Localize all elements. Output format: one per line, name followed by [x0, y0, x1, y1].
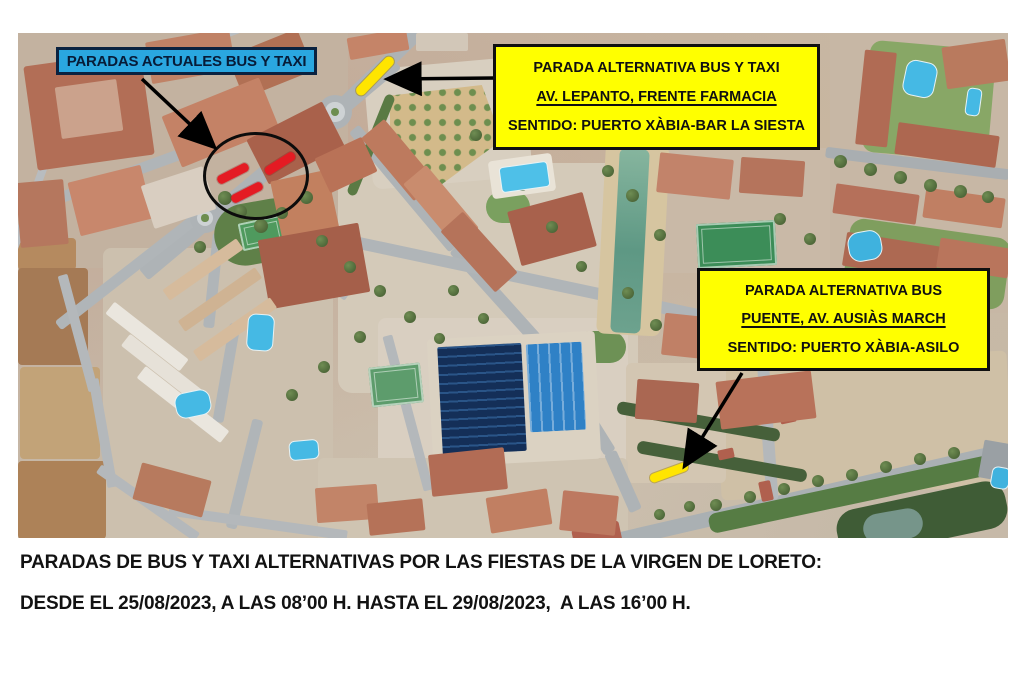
swimming-pool: [288, 439, 320, 462]
building: [18, 179, 69, 248]
solar-panels: [437, 343, 527, 455]
tree: [404, 311, 416, 323]
alt-stop-1-label: PARADA ALTERNATIVA BUS Y TAXI AV. LEPANT…: [493, 44, 820, 150]
tree: [602, 165, 614, 177]
tree: [744, 491, 756, 503]
alt-stop-1-location: AV. LEPANTO, FRENTE FARMACIA: [536, 89, 776, 105]
tree: [710, 499, 722, 511]
sports-court: [696, 220, 777, 269]
building: [559, 490, 619, 536]
tree: [546, 221, 558, 233]
dirt-lot: [18, 461, 106, 538]
tree: [318, 361, 330, 373]
building: [366, 498, 425, 536]
tree: [894, 171, 907, 184]
tree: [354, 331, 366, 343]
building: [941, 39, 1008, 89]
footer-dates: DESDE EL 25/08/2023, A LAS 08’00 H. HAST…: [20, 593, 691, 615]
tree: [804, 233, 816, 245]
current-stops-label-text: PARADAS ACTUALES BUS Y TAXI: [67, 53, 307, 70]
tree: [864, 163, 877, 176]
tree: [344, 261, 356, 273]
alt-stop-2-label: PARADA ALTERNATIVA BUS PUENTE, AV. AUSIÀ…: [697, 268, 990, 371]
tree: [650, 319, 662, 331]
building: [656, 152, 734, 200]
alt-stop-2-title: PARADA ALTERNATIVA BUS: [745, 283, 942, 299]
tree: [982, 191, 994, 203]
tree: [846, 469, 858, 481]
alt-stop-1-title: PARADA ALTERNATIVA BUS Y TAXI: [533, 60, 779, 76]
building: [428, 447, 508, 497]
municipal-pool: [526, 342, 587, 433]
current-stops-label: PARADAS ACTUALES BUS Y TAXI: [56, 47, 317, 75]
tree: [834, 155, 847, 168]
tree: [948, 447, 960, 459]
tree: [654, 229, 666, 241]
swimming-pool: [989, 466, 1008, 491]
tree: [654, 509, 665, 520]
tree: [254, 219, 268, 233]
building: [55, 79, 124, 139]
tree: [778, 483, 790, 495]
building: [739, 157, 805, 197]
building: [416, 33, 468, 51]
tree: [914, 453, 926, 465]
tree: [622, 287, 634, 299]
tree: [374, 285, 386, 297]
tree: [626, 189, 639, 202]
building: [635, 379, 700, 423]
tree: [286, 389, 298, 401]
tree: [478, 313, 489, 324]
tree: [194, 241, 206, 253]
tree: [434, 333, 445, 344]
tree: [470, 129, 482, 141]
tree: [774, 213, 786, 225]
swimming-pool: [246, 313, 276, 352]
footer-title: PARADAS DE BUS Y TAXI ALTERNATIVAS POR L…: [20, 552, 822, 574]
tree: [684, 501, 695, 512]
tree: [924, 179, 937, 192]
alt-stop-2-location: PUENTE, AV. AUSIÀS MARCH: [741, 311, 945, 327]
alt-stop-2-direction: SENTIDO: PUERTO XÀBIA-ASILO: [728, 340, 960, 356]
tree: [880, 461, 892, 473]
alt-stop-1-direction: SENTIDO: PUERTO XÀBIA-BAR LA SIESTA: [508, 118, 805, 134]
tree: [954, 185, 967, 198]
satellite-map: PARADAS ACTUALES BUS Y TAXI PARADA ALTER…: [18, 33, 1008, 538]
tree: [316, 235, 328, 247]
tree: [812, 475, 824, 487]
tree: [576, 261, 587, 272]
tree: [448, 285, 459, 296]
flyer-page: PARADAS ACTUALES BUS Y TAXI PARADA ALTER…: [0, 0, 1024, 675]
sports-court: [368, 362, 424, 407]
